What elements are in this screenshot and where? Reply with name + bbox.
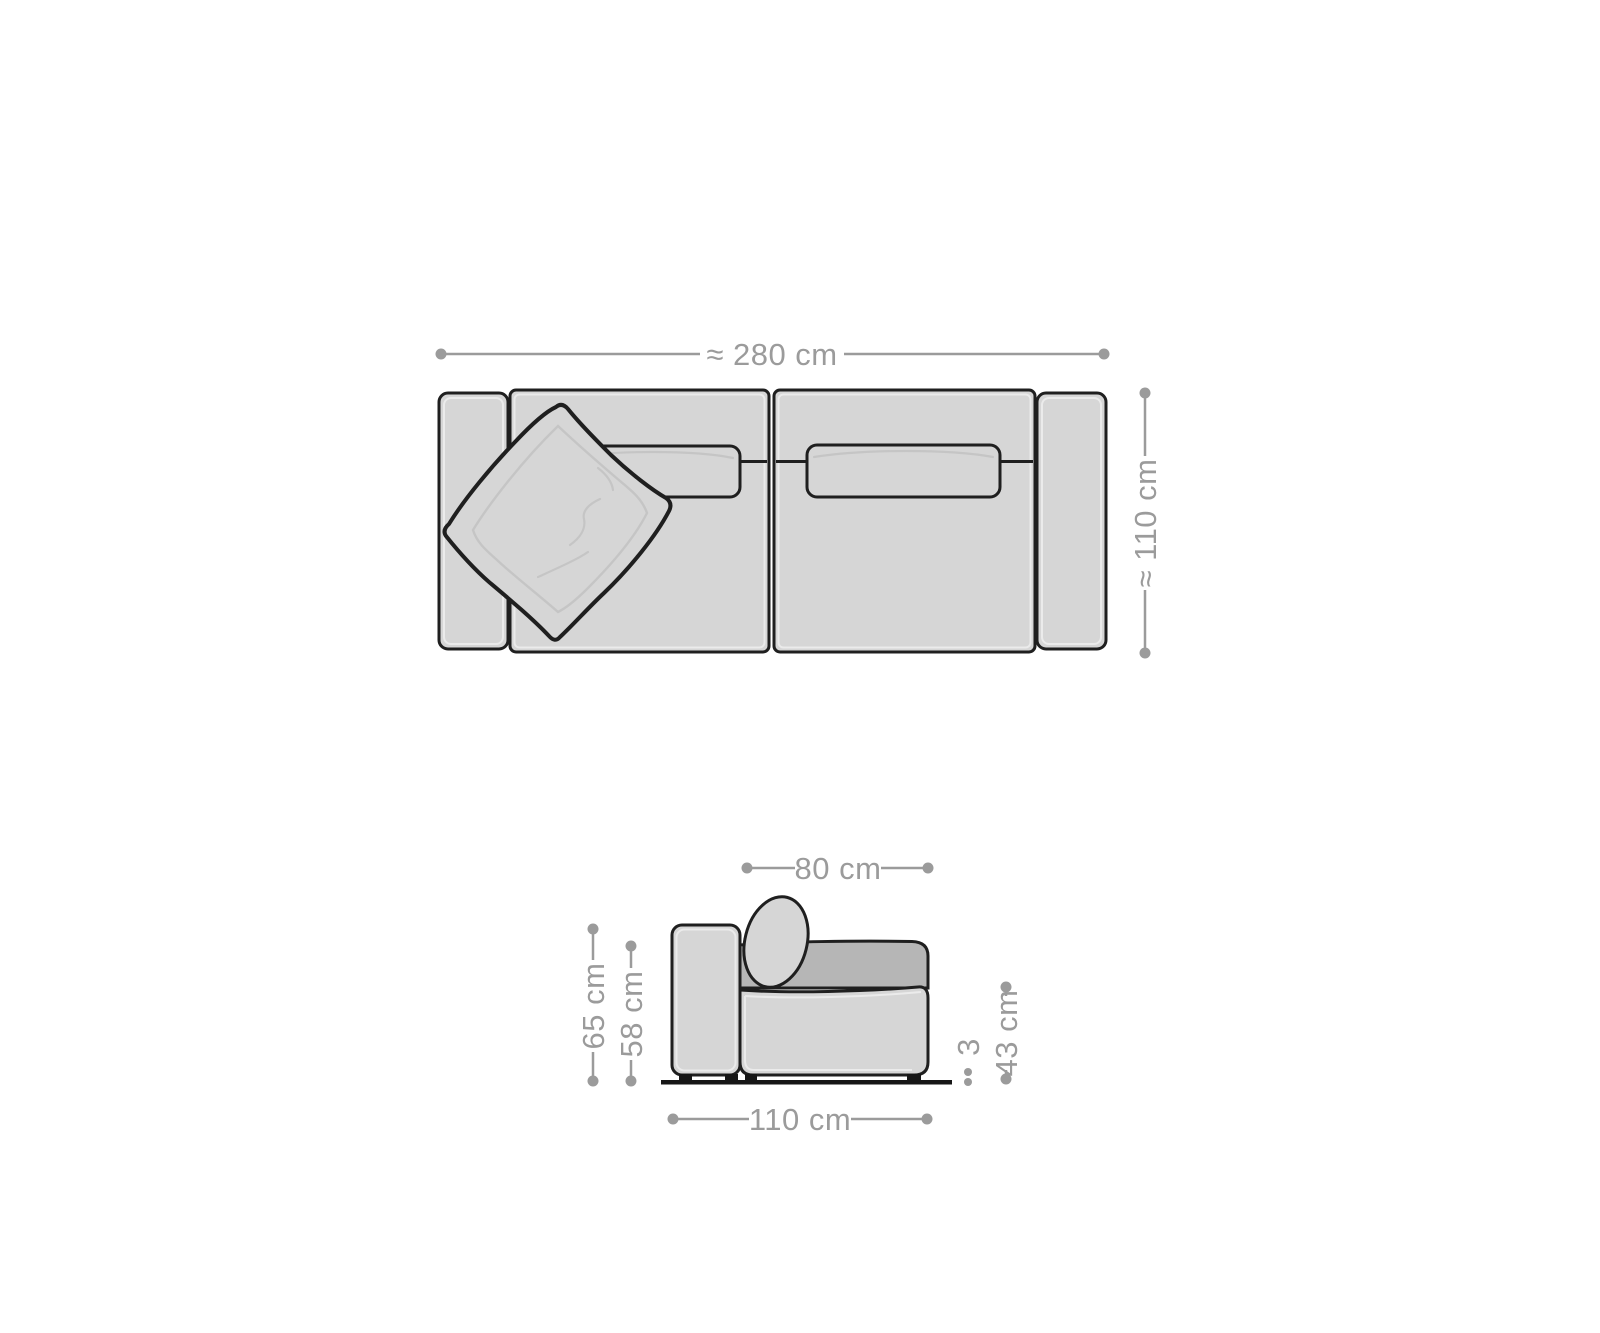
dim-seat-height: 43 cm	[989, 982, 1024, 1085]
dim-foot-height: 3	[951, 1038, 986, 1086]
backrest-height-label: 58 cm	[614, 971, 649, 1058]
dim-dot	[668, 1114, 679, 1125]
dim-total-height: 65 cm	[576, 924, 611, 1087]
dim-dot	[1140, 648, 1151, 659]
dim-dot	[742, 863, 753, 874]
total-depth-label: 110 cm	[749, 1102, 851, 1137]
dim-dot	[1140, 388, 1151, 399]
dim-dot	[964, 1078, 972, 1086]
dim-backrest-height: 58 cm	[614, 941, 649, 1087]
foot-height-label: 3	[951, 1038, 986, 1056]
seat-height-label: 43 cm	[989, 990, 1024, 1077]
dimension-diagram-svg: ≈ 280 cm	[0, 0, 1600, 1333]
backrest-side-view	[672, 925, 740, 1075]
floor-line	[661, 1080, 952, 1085]
right-armrest-top-view	[1037, 393, 1106, 649]
side-view-group: 80 cm 65 cm	[576, 851, 1024, 1137]
overall-depth-label: ≈ 110 cm	[1128, 459, 1163, 588]
seat-depth-label: 80 cm	[795, 851, 882, 886]
sofa-top-view	[439, 390, 1106, 652]
sofa-side-view	[661, 890, 952, 1085]
top-view-group: ≈ 280 cm	[436, 337, 1163, 659]
dim-seat-depth: 80 cm	[742, 851, 934, 886]
dim-dot	[626, 941, 637, 952]
dim-dot	[588, 1076, 599, 1087]
dim-dot	[1099, 349, 1110, 360]
dim-dot	[588, 924, 599, 935]
seat-side-view	[740, 987, 928, 1075]
headrest-cushion-right	[807, 445, 1000, 497]
overall-width-label: ≈ 280 cm	[706, 337, 837, 372]
dim-dot	[964, 1068, 972, 1076]
total-height-label: 65 cm	[576, 963, 611, 1050]
seat-module-right-top-view	[774, 390, 1035, 652]
dim-overall-width: ≈ 280 cm	[436, 337, 1110, 372]
dim-dot	[436, 349, 447, 360]
furniture-dimension-diagram: ≈ 280 cm	[0, 0, 1600, 1333]
dim-total-depth: 110 cm	[668, 1102, 933, 1137]
dim-dot	[922, 1114, 933, 1125]
dim-dot	[923, 863, 934, 874]
dim-overall-depth: ≈ 110 cm	[1128, 388, 1163, 659]
dim-dot	[626, 1076, 637, 1087]
